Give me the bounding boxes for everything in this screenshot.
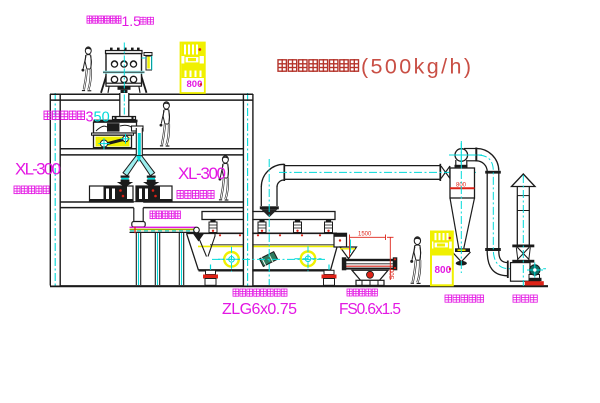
svg-text:50: 50 [94, 110, 110, 126]
svg-text:ZLG6x0.75: ZLG6x0.75 [222, 301, 297, 318]
svg-text:3: 3 [86, 110, 94, 126]
svg-text:(500kg/h): (500kg/h) [361, 55, 471, 79]
svg-text:XL-300: XL-300 [15, 160, 61, 179]
svg-text:500: 500 [390, 268, 396, 279]
svg-text:800: 800 [435, 265, 452, 276]
svg-text:XL-300: XL-300 [178, 164, 226, 183]
svg-text:1500: 1500 [358, 231, 372, 237]
svg-text:1.5: 1.5 [122, 13, 142, 29]
svg-text:FS0.6x1.5: FS0.6x1.5 [339, 301, 401, 318]
